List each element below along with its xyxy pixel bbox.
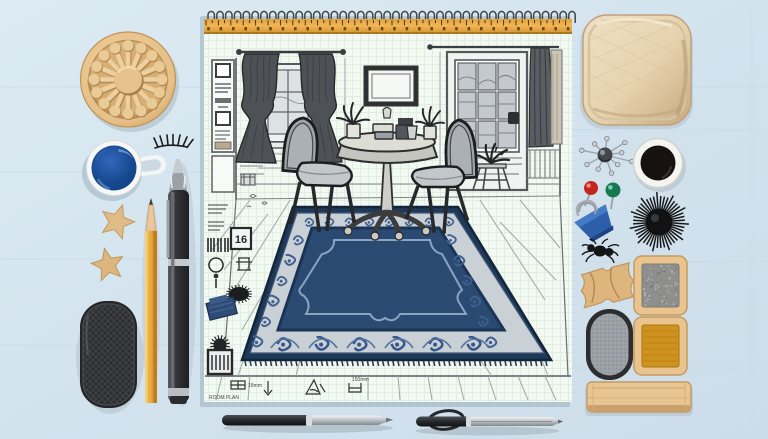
svg-text:ROOM PLAN: ROOM PLAN: [209, 395, 239, 401]
svg-text:16: 16: [235, 234, 247, 246]
svg-text:150mm: 150mm: [352, 377, 369, 383]
svg-text:16mm: 16mm: [248, 383, 262, 389]
